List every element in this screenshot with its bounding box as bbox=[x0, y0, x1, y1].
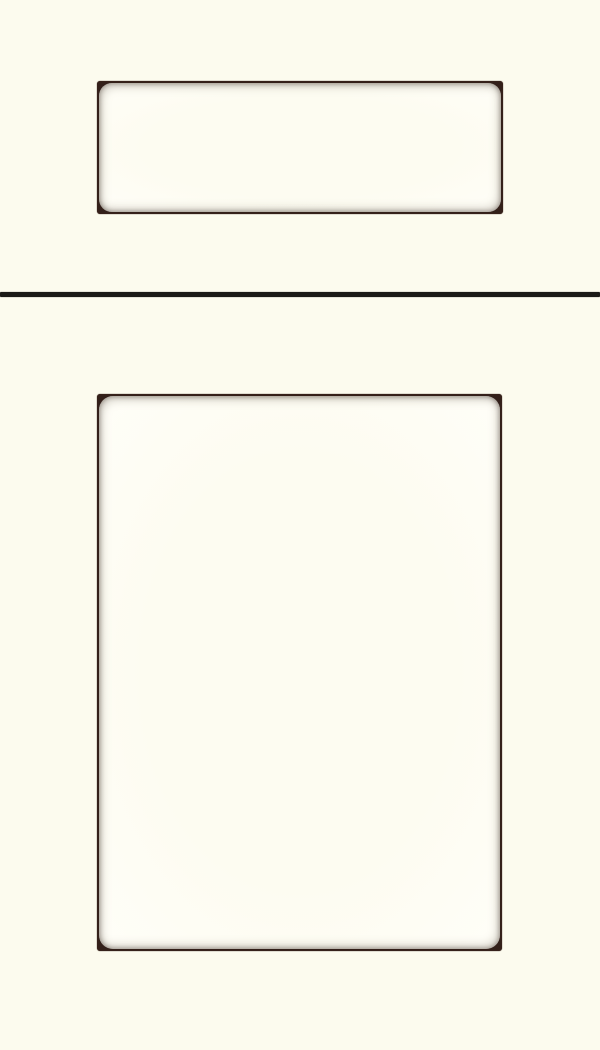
cabinet-door bbox=[97, 394, 502, 951]
rail-divider-line bbox=[0, 292, 600, 297]
cabinet-sample-image bbox=[0, 0, 600, 1050]
door-recessed-panel bbox=[99, 396, 500, 949]
drawer-front bbox=[97, 81, 503, 214]
drawer-recessed-panel bbox=[99, 83, 501, 212]
